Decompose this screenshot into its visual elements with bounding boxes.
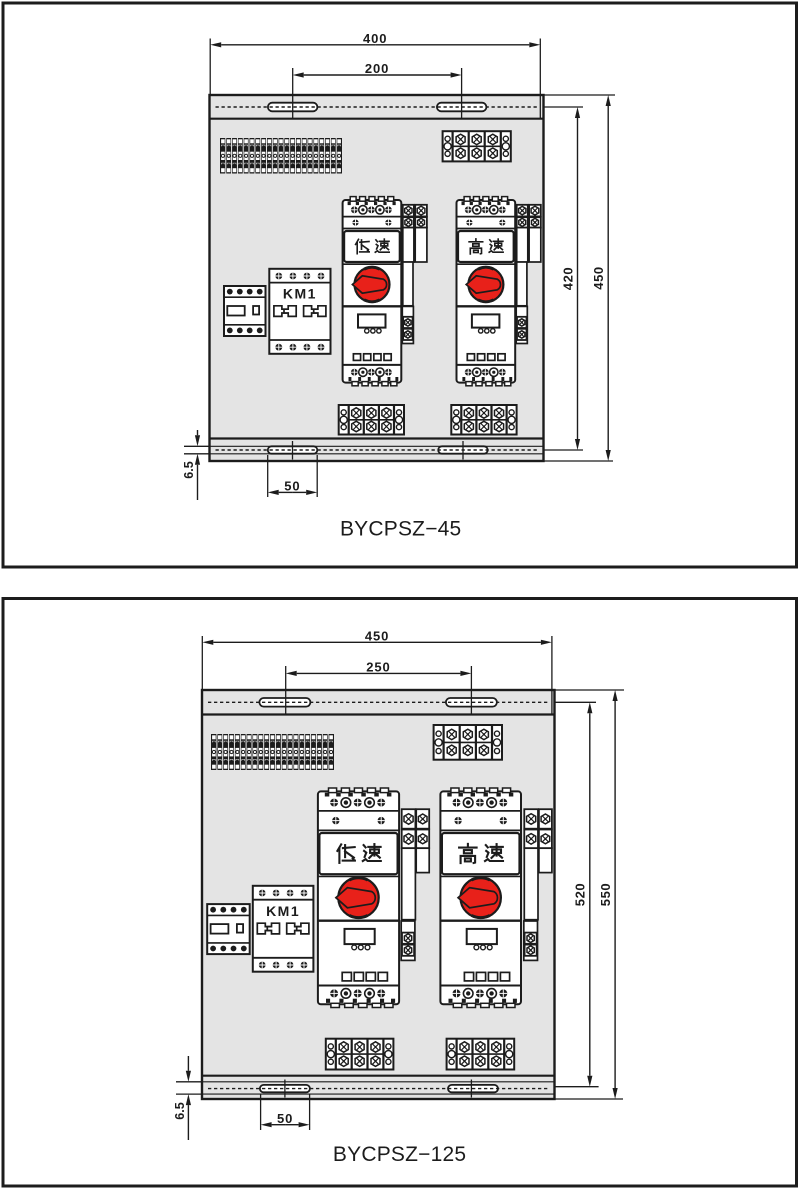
svg-text:520: 520 xyxy=(573,883,588,907)
svg-text:KM1: KM1 xyxy=(266,903,300,919)
svg-text:KM1: KM1 xyxy=(283,286,317,302)
svg-text:50: 50 xyxy=(284,479,300,494)
svg-text:420: 420 xyxy=(560,267,575,291)
svg-text:450: 450 xyxy=(365,629,389,644)
svg-text:550: 550 xyxy=(598,883,613,907)
svg-text:6.5: 6.5 xyxy=(182,461,196,478)
svg-text:450: 450 xyxy=(591,266,606,290)
svg-text:400: 400 xyxy=(363,31,387,46)
svg-text:200: 200 xyxy=(365,61,389,76)
svg-text:250: 250 xyxy=(366,660,390,675)
svg-text:BYCPSZ−125: BYCPSZ−125 xyxy=(333,1143,466,1166)
svg-text:50: 50 xyxy=(277,1111,293,1126)
svg-text:6.5: 6.5 xyxy=(173,1102,187,1119)
svg-text:BYCPSZ−45: BYCPSZ−45 xyxy=(340,518,461,541)
